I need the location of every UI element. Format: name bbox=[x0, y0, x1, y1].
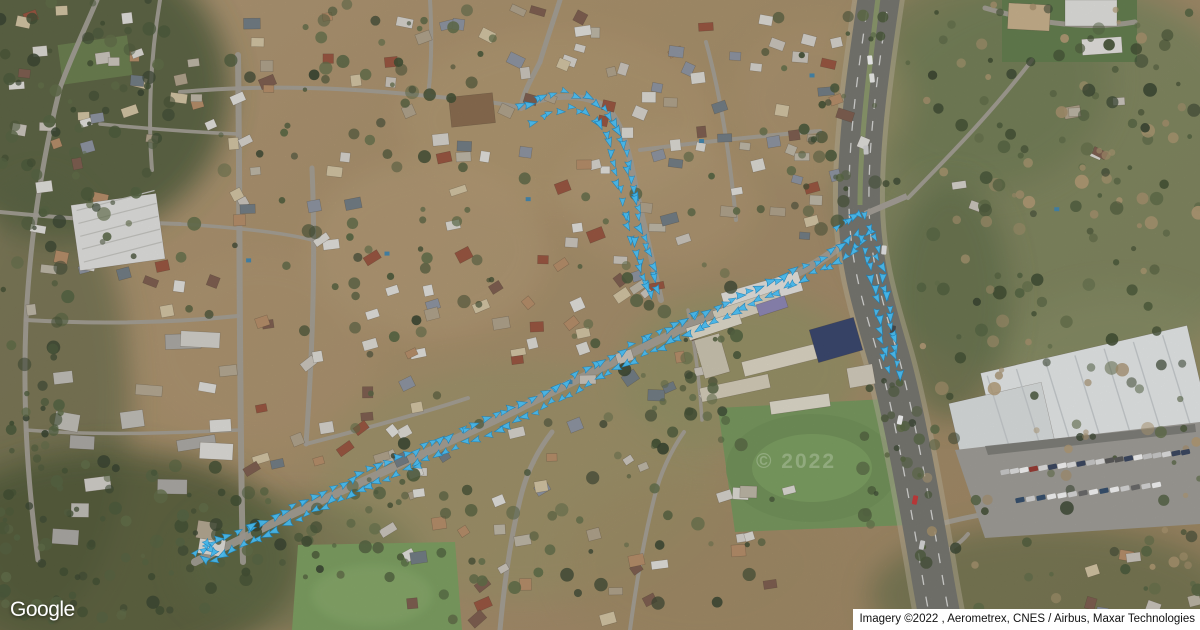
imagery-attribution: Imagery ©2022 , Aerometrex, CNES / Airbu… bbox=[853, 609, 1200, 630]
satellite-imagery bbox=[0, 0, 1200, 630]
satellite-map-view[interactable]: © 2022 Google Imagery ©2022 , Aerometrex… bbox=[0, 0, 1200, 630]
imagery-attribution-text: Imagery ©2022 , Aerometrex, CNES / Airbu… bbox=[859, 613, 1195, 625]
google-logo[interactable]: Google bbox=[10, 598, 75, 622]
grain-overlay-light bbox=[0, 0, 1200, 630]
